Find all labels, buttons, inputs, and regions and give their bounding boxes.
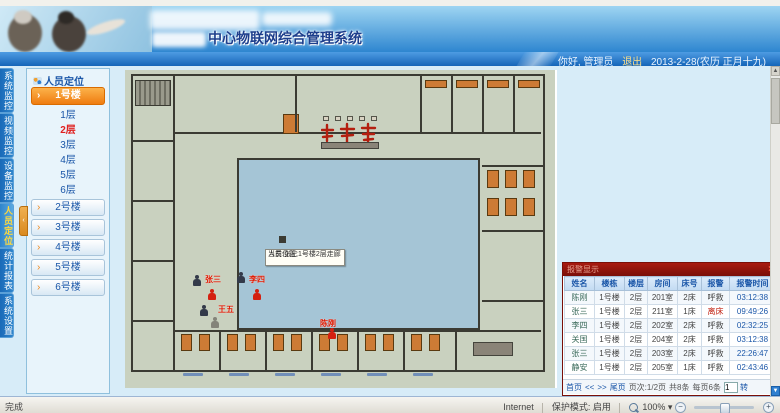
bed [487, 170, 499, 188]
protected-mode-text: 保护模式: 启用 [552, 402, 611, 412]
alarm-person-marker[interactable] [208, 289, 216, 301]
cell-building: 1号楼 [595, 291, 625, 305]
tab-settings[interactable]: 系统设置 [0, 293, 14, 338]
cell-type: 呼救 [702, 333, 730, 347]
floor-item-5[interactable]: 5层 [27, 166, 109, 181]
cell-time: 22:26:47 [730, 347, 776, 361]
plan-wall [420, 76, 422, 132]
stairs-block [135, 80, 171, 106]
cell-building: 1号楼 [595, 305, 625, 319]
wardrobe [487, 80, 509, 88]
floor-item-2-active[interactable]: 2层 [27, 121, 109, 136]
cell-floor: 2层 [625, 333, 648, 347]
bed [505, 198, 517, 216]
building-button-3[interactable]: 3号楼 [31, 219, 105, 236]
plan-wall [133, 200, 173, 202]
scrollbar-thumb[interactable] [771, 78, 780, 124]
censor-blur [262, 12, 332, 26]
alarm-panel: 报警显示 × 姓名 楼栋 楼层 房间 床号 报警 报警时间 陈刚1号楼2层201… [562, 262, 778, 396]
person-marker[interactable] [237, 272, 245, 284]
cell-floor: 2层 [625, 347, 648, 361]
alarm-col-header: 楼层 [625, 277, 648, 291]
person-marker[interactable] [200, 305, 208, 317]
person-marker[interactable] [211, 317, 219, 329]
page-next-link[interactable]: >> [597, 383, 606, 392]
logout-link[interactable]: 退出 [622, 57, 642, 66]
user-info: 你好, 管理员 退出 2013-2-28(农历 正月十九) [558, 53, 766, 66]
alarm-person-marker[interactable] [253, 289, 261, 301]
divider [542, 403, 543, 413]
page-title-text: 中心物联网综合管理系统 [208, 30, 362, 46]
bed [523, 198, 535, 216]
alarm-row[interactable]: 李四1号楼2层202室2床呼救02:32:25 [565, 319, 776, 333]
cell-room: 202室 [648, 319, 678, 333]
building-button-1[interactable]: 1号楼 [31, 87, 105, 105]
alarm-row[interactable]: 静安1号楼2层205室1床呼救02:43:46 [565, 361, 776, 375]
cell-name: 静安 [565, 361, 595, 375]
alarm-col-header: 报警 [702, 277, 730, 291]
app-window: 中心物联网综合管理系统 你好, 管理员 退出 2013-2-28(农历 正月十九… [0, 0, 780, 413]
bed [383, 334, 394, 351]
plan-wall [482, 165, 543, 167]
page-info: 页次:1/2页 [629, 383, 666, 392]
cell-name: 陈刚 [565, 291, 595, 305]
greeting-text: 你好, 管理员 [558, 57, 614, 66]
building-button-2[interactable]: 2号楼 [31, 199, 105, 216]
tab-device-monitor[interactable]: 设备监控 [0, 158, 14, 203]
cell-bed: 1床 [678, 361, 702, 375]
room-number-mark [229, 373, 249, 376]
plan-wall [295, 76, 297, 132]
chair [347, 116, 353, 121]
alarm-table: 姓名 楼栋 楼层 房间 床号 报警 报警时间 陈刚1号楼2层201室2床呼救03… [564, 276, 776, 375]
chair [323, 116, 329, 121]
alarm-col-header: 房间 [648, 277, 678, 291]
cell-room: 204室 [648, 333, 678, 347]
censor-blur [152, 32, 206, 47]
alarm-row[interactable]: 陈刚1号楼2层201室2床呼救03:12:38 [565, 291, 776, 305]
building-button-6[interactable]: 6号楼 [31, 279, 105, 296]
cell-room: 211室 [648, 305, 678, 319]
plan-wall [403, 332, 405, 370]
person-name-label: 王五 [218, 304, 234, 315]
divider [619, 403, 620, 413]
cell-name: 张三 [565, 305, 595, 319]
alarm-person-marker[interactable] [328, 328, 336, 340]
cell-floor: 2层 [625, 305, 648, 319]
bed [523, 170, 535, 188]
page-first-link[interactable]: 首页 [566, 383, 582, 392]
bed [411, 334, 422, 351]
alarm-row[interactable]: 张三1号楼2层211室1床离床09:49:26 [565, 305, 776, 319]
header-photo [0, 6, 152, 52]
zoom-in-button[interactable]: + [763, 402, 774, 413]
plan-wall [219, 332, 221, 370]
zoom-level-text[interactable]: 100% [642, 402, 665, 412]
cell-building: 1号楼 [595, 333, 625, 347]
cell-bed: 2床 [678, 333, 702, 347]
floor-item-3[interactable]: 3层 [27, 136, 109, 151]
person-marker[interactable] [193, 275, 201, 287]
cell-building: 1号楼 [595, 319, 625, 333]
tab-system-monitor[interactable]: 系统监控 [0, 68, 14, 113]
cell-room: 205室 [648, 361, 678, 375]
sidebar-panel: 人员定位 1号楼 1层 2层 3层 4层 5层 6层 2号楼 3号楼 4号楼 5… [26, 68, 110, 394]
table-furniture [321, 142, 379, 149]
zoom-slider[interactable] [694, 406, 754, 409]
floor-plan: 张三 李四 王五 陈刚 人员:张三 当前位置:1号楼2层走廊 [125, 70, 557, 388]
bed [273, 334, 284, 351]
wardrobe [425, 80, 447, 88]
cell-floor: 2层 [625, 291, 648, 305]
plan-wall [133, 260, 173, 262]
chair [371, 116, 377, 121]
floor-item-1[interactable]: 1层 [27, 106, 109, 121]
plan-wall [482, 230, 543, 232]
zoom-out-button[interactable]: − [675, 402, 686, 413]
plan-courtyard-pool [237, 158, 480, 330]
alarm-header-row: 姓名 楼栋 楼层 房间 床号 报警 报警时间 [565, 277, 776, 291]
alarm-col-header: 姓名 [565, 277, 595, 291]
alarm-col-header: 报警时间 [730, 277, 776, 291]
cell-type: 呼救 [702, 291, 730, 305]
plan-wall [482, 76, 484, 132]
vertical-scrollbar[interactable]: ▲ ▼ [770, 66, 780, 396]
page-prev-link[interactable]: << [585, 383, 594, 392]
table-furniture [473, 342, 513, 356]
person-tooltip: 人员:张三 当前位置:1号楼2层走廊 [265, 249, 345, 266]
photo-figure [14, 10, 32, 24]
plan-wall [455, 332, 457, 370]
cell-type: 呼救 [702, 319, 730, 333]
room-number-mark [367, 373, 387, 376]
bed [505, 170, 517, 188]
cell-type: 呼救 [702, 347, 730, 361]
sidebar-collapse-handle[interactable]: ‹ [19, 206, 28, 236]
sub-header-bar: 你好, 管理员 退出 2013-2-28(农历 正月十九) [0, 52, 780, 66]
bed [487, 198, 499, 216]
zoom-dropdown-icon[interactable]: ▾ [668, 402, 673, 412]
person-name-label: 张三 [205, 274, 221, 285]
photo-figure [85, 16, 126, 38]
bed [227, 334, 238, 351]
cell-building: 1号楼 [595, 361, 625, 375]
cell-name: 关国 [565, 333, 595, 347]
zoom-magnifier-icon [629, 403, 638, 412]
cell-time: 02:32:25 [730, 319, 776, 333]
chair [335, 116, 341, 121]
tab-video-monitor[interactable]: 视频监控 [0, 113, 14, 158]
floor-item-4[interactable]: 4层 [27, 151, 109, 166]
plan-wall [482, 300, 543, 302]
scroll-down-icon[interactable]: ▼ [771, 386, 780, 396]
cell-type: 呼救 [702, 361, 730, 375]
cell-bed: 2床 [678, 347, 702, 361]
zoom-slider-knob[interactable] [720, 403, 730, 413]
bed [365, 334, 376, 351]
cell-building: 1号楼 [595, 347, 625, 361]
cell-room: 203室 [648, 347, 678, 361]
room-number-mark [183, 373, 203, 376]
plan-wall [451, 76, 453, 132]
cell-floor: 2层 [625, 361, 648, 375]
status-bar: 完成 Internet 保护模式: 启用 100% ▾ − + [0, 396, 780, 413]
floor-item-6[interactable]: 6层 [27, 181, 109, 196]
swoosh-decor [514, 52, 560, 66]
photo-figure [58, 11, 74, 24]
bed [181, 334, 192, 351]
alarm-panel-title: 报警显示 [563, 263, 777, 276]
goto-page-input[interactable] [724, 382, 738, 393]
bed [429, 334, 440, 351]
bed [245, 334, 256, 351]
plan-wall [357, 332, 359, 370]
cell-time: 09:49:26 [730, 305, 776, 319]
tab-statistics[interactable]: 统计报表 [0, 248, 14, 293]
bed [291, 334, 302, 351]
cell-time: 03:12:38 [730, 333, 776, 347]
censor-blur [150, 10, 260, 30]
cell-name: 张三 [565, 347, 595, 361]
plan-wall [311, 332, 313, 370]
per-page-count: 每页6条 [692, 383, 720, 392]
building-button-5[interactable]: 5号楼 [31, 259, 105, 276]
status-zone-text: Internet [503, 402, 534, 412]
goto-page-button[interactable]: 转 [740, 380, 748, 395]
cell-name: 李四 [565, 319, 595, 333]
header-banner: 中心物联网综合管理系统 [0, 6, 780, 52]
cell-floor: 2层 [625, 319, 648, 333]
bed [199, 334, 210, 351]
plan-wall [133, 320, 173, 322]
scroll-up-icon[interactable]: ▲ [771, 66, 780, 76]
total-count: 共8条 [669, 383, 689, 392]
page-title: 中心物联网综合管理系统 [152, 28, 362, 48]
alarm-row[interactable]: 关国1号楼2层204室2床呼救03:12:38 [565, 333, 776, 347]
page-last-link[interactable]: 尾页 [610, 383, 626, 392]
alarm-pagination: 首页<<>>尾页页次:1/2页共8条每页6条转 [563, 379, 777, 394]
status-done-text: 完成 [5, 400, 23, 413]
tooltip-line2: 当前位置:1号楼2层走廊 [268, 251, 341, 259]
plan-wall [173, 76, 175, 372]
person-name-label: 李四 [249, 274, 265, 285]
bed [337, 334, 348, 351]
wardrobe [518, 80, 540, 88]
room-number-mark [413, 373, 433, 376]
alarm-col-header: 楼栋 [595, 277, 625, 291]
alarm-row[interactable]: 张三1号楼2层203室2床呼救22:26:47 [565, 347, 776, 361]
plan-wall [513, 76, 515, 132]
cell-bed: 2床 [678, 291, 702, 305]
plan-wall [265, 332, 267, 370]
wardrobe [456, 80, 478, 88]
room-number-mark [321, 373, 341, 376]
sidebar-title: 人员定位 [33, 73, 84, 88]
building-button-4[interactable]: 4号楼 [31, 239, 105, 256]
cell-time: 02:43:46 [730, 361, 776, 375]
chair [359, 116, 365, 121]
cell-bed: 1床 [678, 305, 702, 319]
pillar [279, 236, 286, 243]
date-text: 2013-2-28(农历 正月十九) [651, 57, 766, 66]
plan-wall [133, 140, 173, 142]
cell-room: 201室 [648, 291, 678, 305]
people-icon [33, 77, 42, 85]
cell-type: 离床 [702, 305, 730, 319]
alarm-col-header: 床号 [678, 277, 702, 291]
cell-bed: 2床 [678, 319, 702, 333]
red-calligraphy-mark [321, 122, 379, 144]
room-number-mark [275, 373, 295, 376]
tab-person-positioning[interactable]: 人员定位 [0, 203, 14, 248]
cell-time: 03:12:38 [730, 291, 776, 305]
